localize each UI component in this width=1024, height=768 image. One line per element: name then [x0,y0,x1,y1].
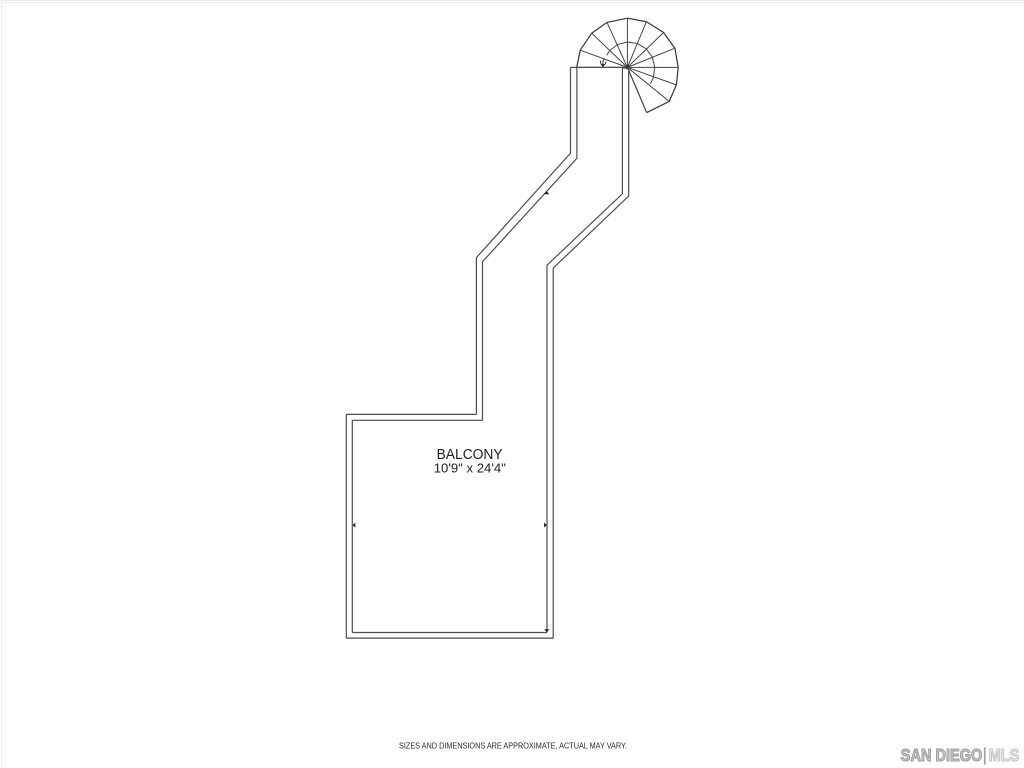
svg-text:10'9" x 24'4": 10'9" x 24'4" [434,461,507,476]
svg-text:SAN DIEGO: SAN DIEGO [901,745,983,765]
svg-text:MLS: MLS [989,745,1019,765]
svg-text:SIZES AND DIMENSIONS ARE APPRO: SIZES AND DIMENSIONS ARE APPROXIMATE, AC… [399,741,627,751]
